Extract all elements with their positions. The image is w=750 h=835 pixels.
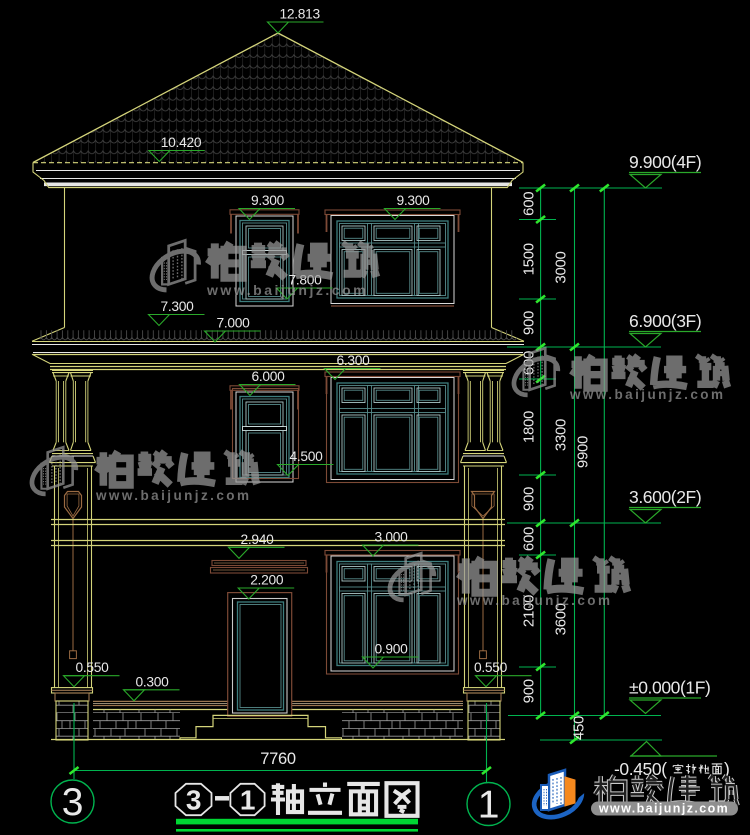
svg-text:9900: 9900 <box>574 436 591 468</box>
svg-text:www.baijunjz.com: www.baijunjz.com <box>456 593 612 608</box>
svg-text:9.300: 9.300 <box>251 193 285 208</box>
svg-text:900: 900 <box>521 311 538 335</box>
svg-text:www.baijunjz.com: www.baijunjz.com <box>95 488 251 503</box>
svg-text:www.baijunjz.com: www.baijunjz.com <box>598 802 729 816</box>
svg-text:7.000: 7.000 <box>217 316 251 331</box>
svg-text:0.900: 0.900 <box>375 642 409 657</box>
svg-text:7760: 7760 <box>260 750 296 768</box>
svg-text:2.940: 2.940 <box>241 532 275 547</box>
svg-text:3: 3 <box>186 785 201 816</box>
svg-text:9.900(4F): 9.900(4F) <box>629 152 701 172</box>
svg-text:www.baijunjz.com: www.baijunjz.com <box>206 282 368 298</box>
svg-text:600: 600 <box>521 192 538 216</box>
svg-text:www.baijunjz.com: www.baijunjz.com <box>569 387 725 402</box>
svg-text:1: 1 <box>478 784 499 827</box>
svg-text:600: 600 <box>521 527 538 551</box>
svg-text:450: 450 <box>571 716 588 740</box>
svg-text:3000: 3000 <box>553 251 570 283</box>
svg-text:12.813: 12.813 <box>280 7 321 22</box>
svg-text:6.300: 6.300 <box>337 353 371 368</box>
svg-text:10.420: 10.420 <box>161 135 202 150</box>
svg-text:1500: 1500 <box>521 243 538 275</box>
svg-text:900: 900 <box>521 679 538 703</box>
svg-text:6.900(3F): 6.900(3F) <box>629 311 701 331</box>
svg-text:3.000: 3.000 <box>375 530 409 545</box>
svg-text:±0.000(1F): ±0.000(1F) <box>629 678 710 698</box>
svg-text:0.300: 0.300 <box>136 674 170 689</box>
svg-text:3300: 3300 <box>553 419 570 451</box>
svg-text:1800: 1800 <box>521 411 538 443</box>
svg-text:3: 3 <box>62 781 83 824</box>
svg-text:2.200: 2.200 <box>250 573 284 588</box>
svg-text:4.500: 4.500 <box>290 449 324 464</box>
svg-text:-0.450(: -0.450( <box>614 759 667 779</box>
svg-text:900: 900 <box>521 487 538 511</box>
svg-text:6.000: 6.000 <box>252 369 286 384</box>
svg-text:7.300: 7.300 <box>161 299 195 314</box>
svg-text:9.300: 9.300 <box>397 193 431 208</box>
svg-text:0.550: 0.550 <box>76 660 110 675</box>
svg-text:3.600(2F): 3.600(2F) <box>629 487 701 507</box>
svg-text:1: 1 <box>240 785 255 816</box>
svg-text:0.550: 0.550 <box>474 660 508 675</box>
